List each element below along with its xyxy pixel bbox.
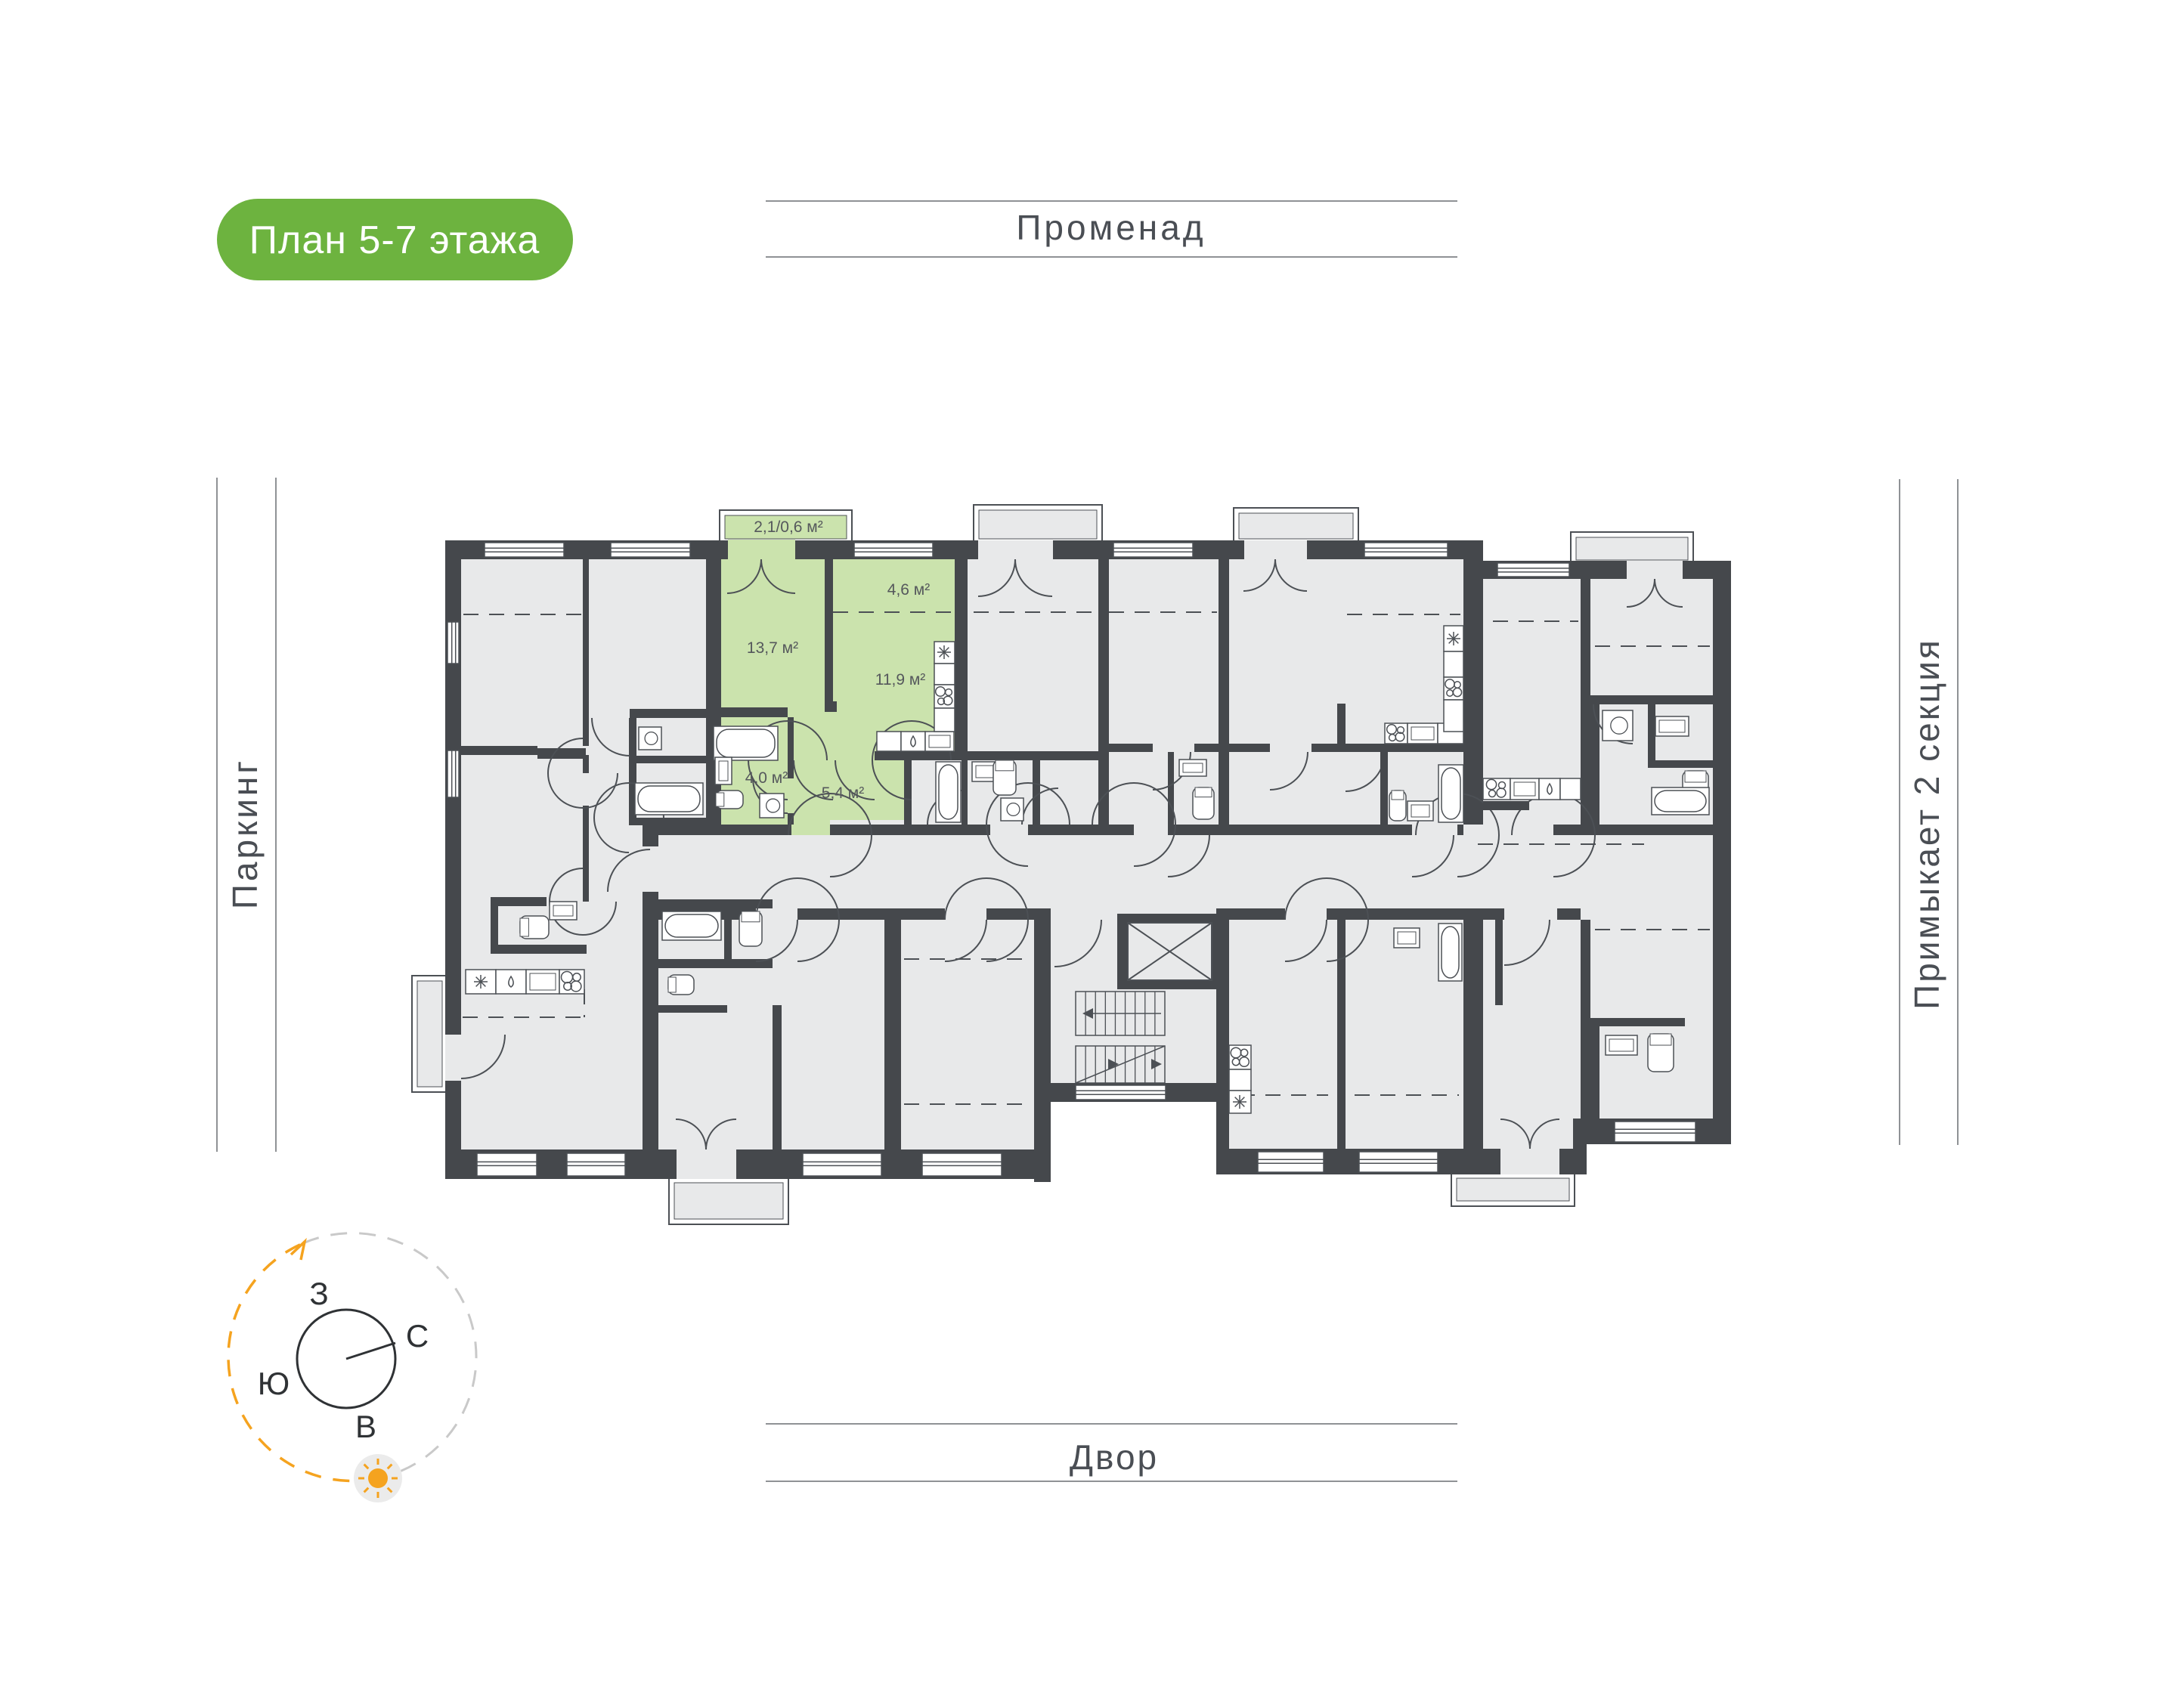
svg-text:5,4 м²: 5,4 м² xyxy=(822,784,864,802)
svg-text:План 5-7 этажа: План 5-7 этажа xyxy=(249,218,540,262)
svg-text:4,6 м²: 4,6 м² xyxy=(887,581,930,599)
svg-text:Ю: Ю xyxy=(258,1366,290,1401)
svg-text:2,1/0,6 м²: 2,1/0,6 м² xyxy=(754,518,823,536)
svg-text:Двор: Двор xyxy=(1070,1437,1159,1477)
svg-text:С: С xyxy=(406,1318,429,1354)
svg-text:Паркинг: Паркинг xyxy=(225,758,265,909)
svg-text:11,9 м²: 11,9 м² xyxy=(875,671,926,688)
svg-text:4,0 м²: 4,0 м² xyxy=(745,769,788,787)
svg-text:В: В xyxy=(355,1409,376,1444)
svg-text:Променад: Променад xyxy=(1016,208,1206,247)
svg-text:13,7 м²: 13,7 м² xyxy=(747,639,798,657)
svg-text:Примыкает 2 секция: Примыкает 2 секция xyxy=(1907,638,1946,1010)
svg-text:З: З xyxy=(309,1276,328,1311)
